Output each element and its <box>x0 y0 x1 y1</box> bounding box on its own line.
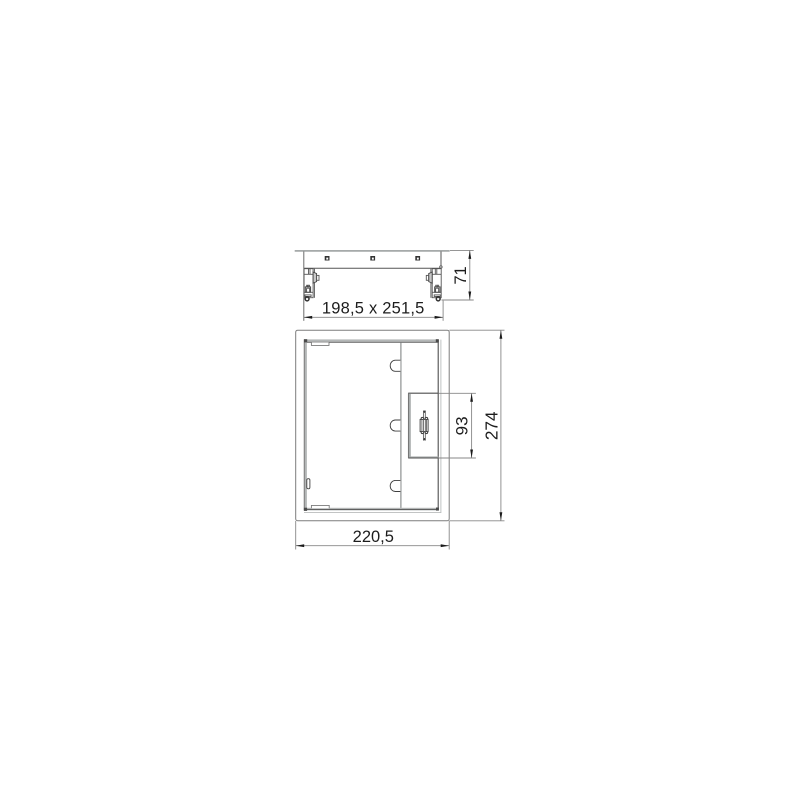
svg-text:220,5: 220,5 <box>353 528 394 546</box>
svg-text:71: 71 <box>452 266 470 284</box>
svg-text:274: 274 <box>482 411 502 440</box>
svg-text:198,5 x 251,5: 198,5 x 251,5 <box>322 300 425 318</box>
svg-text:93: 93 <box>453 416 472 435</box>
